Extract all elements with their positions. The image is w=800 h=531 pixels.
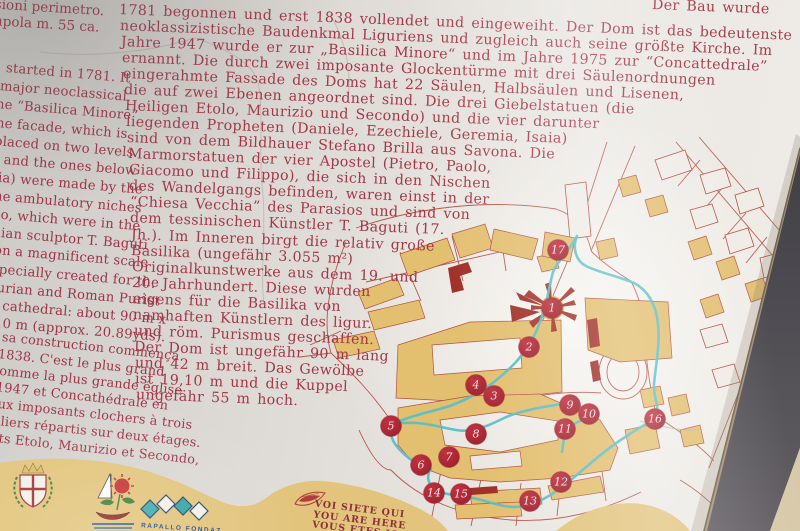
english-text-line: ne “Basilica Minore” [0, 97, 139, 124]
french-text-line: piliers répartis sur deux étages. [0, 413, 201, 451]
french-text-line: sa construction commença [1, 330, 180, 364]
diamonds-logo [141, 495, 208, 520]
map-paper-area [330, 110, 800, 530]
french-text-line: eux imposants clochers à trois [0, 396, 193, 433]
english-text-line: placed on two levels. [0, 134, 138, 161]
french-text-line: 1947 et Concathédrale en [0, 380, 169, 414]
english-text-line: gurian and Roman Purist [0, 280, 161, 309]
english-text-line: on a magnificent scale [0, 243, 149, 271]
english-text-line: started in 1781. It [5, 61, 131, 86]
german-text-line: eigens für die Basilika von [133, 291, 342, 315]
french-text-line: ints Etolo, Maurizio et Secondo, [0, 430, 200, 468]
german-text-line: neoklassizistische Baudenkmal Liguriens … [120, 18, 773, 59]
italian-text-line: a cupola m. 55 ca. [0, 12, 100, 36]
diamonds-logo-caption: RAPALLO FONDAZ [141, 522, 222, 531]
french-text-line: 1838. C'est le plus grand [0, 347, 165, 380]
german-text-line: eingerahmte Fassade des Doms hat 22 Säul… [123, 66, 685, 104]
english-text-line: inian sculptor T. Baguti [0, 225, 149, 253]
german-text-line: 1781 begonnen und erst 1838 vollendet un… [119, 2, 793, 44]
english-text-line: major neoclassical [0, 79, 128, 105]
english-text-line: he ambulatory niches [0, 189, 142, 216]
english-text-line: e cathedral: about 90 m x [0, 298, 167, 328]
sand-ground [770, 448, 800, 531]
german-text-line: ungefähr 55 m hoch. [136, 387, 299, 409]
german-text-line: Der Bau wurde [652, 0, 770, 18]
german-text-line: ist 19,10 m und die Kuppel [135, 371, 349, 395]
german-text-line: Jahre 1947 wurde er zur „Basilica Minore… [121, 34, 768, 75]
french-text-line: comme la plus grande église [0, 363, 183, 399]
italian-text-line: nsioni perimetro. [0, 0, 105, 19]
german-text-line: ernannt. Die durch zwei imposante Glocke… [122, 50, 716, 89]
english-text-line: 10 m (approx. 20.89yds). [0, 316, 166, 345]
english-text-line: aia) were made by the [0, 170, 143, 198]
english-text-line: specially created for the [0, 262, 160, 291]
english-text-line: po, which were in the [0, 207, 141, 234]
german-text-line: Basilika (ungefähr 3.055 m²) [131, 243, 354, 268]
flower-boat-logo [92, 474, 135, 528]
you-are-here-label: VOI SIETE QUI YOU ARE HERE VOUS ETES ICI [311, 499, 408, 531]
english-text-line: ne facade, which is [0, 116, 128, 142]
english-text-line: ) and the ones below [0, 152, 137, 179]
german-text-line: und 42 m breit. Das Gewölbe [135, 355, 365, 380]
sign-photo: nsioni perimetro.a cupola m. 55 ca. star… [0, 0, 800, 531]
coat-of-arms-logo [14, 463, 51, 507]
